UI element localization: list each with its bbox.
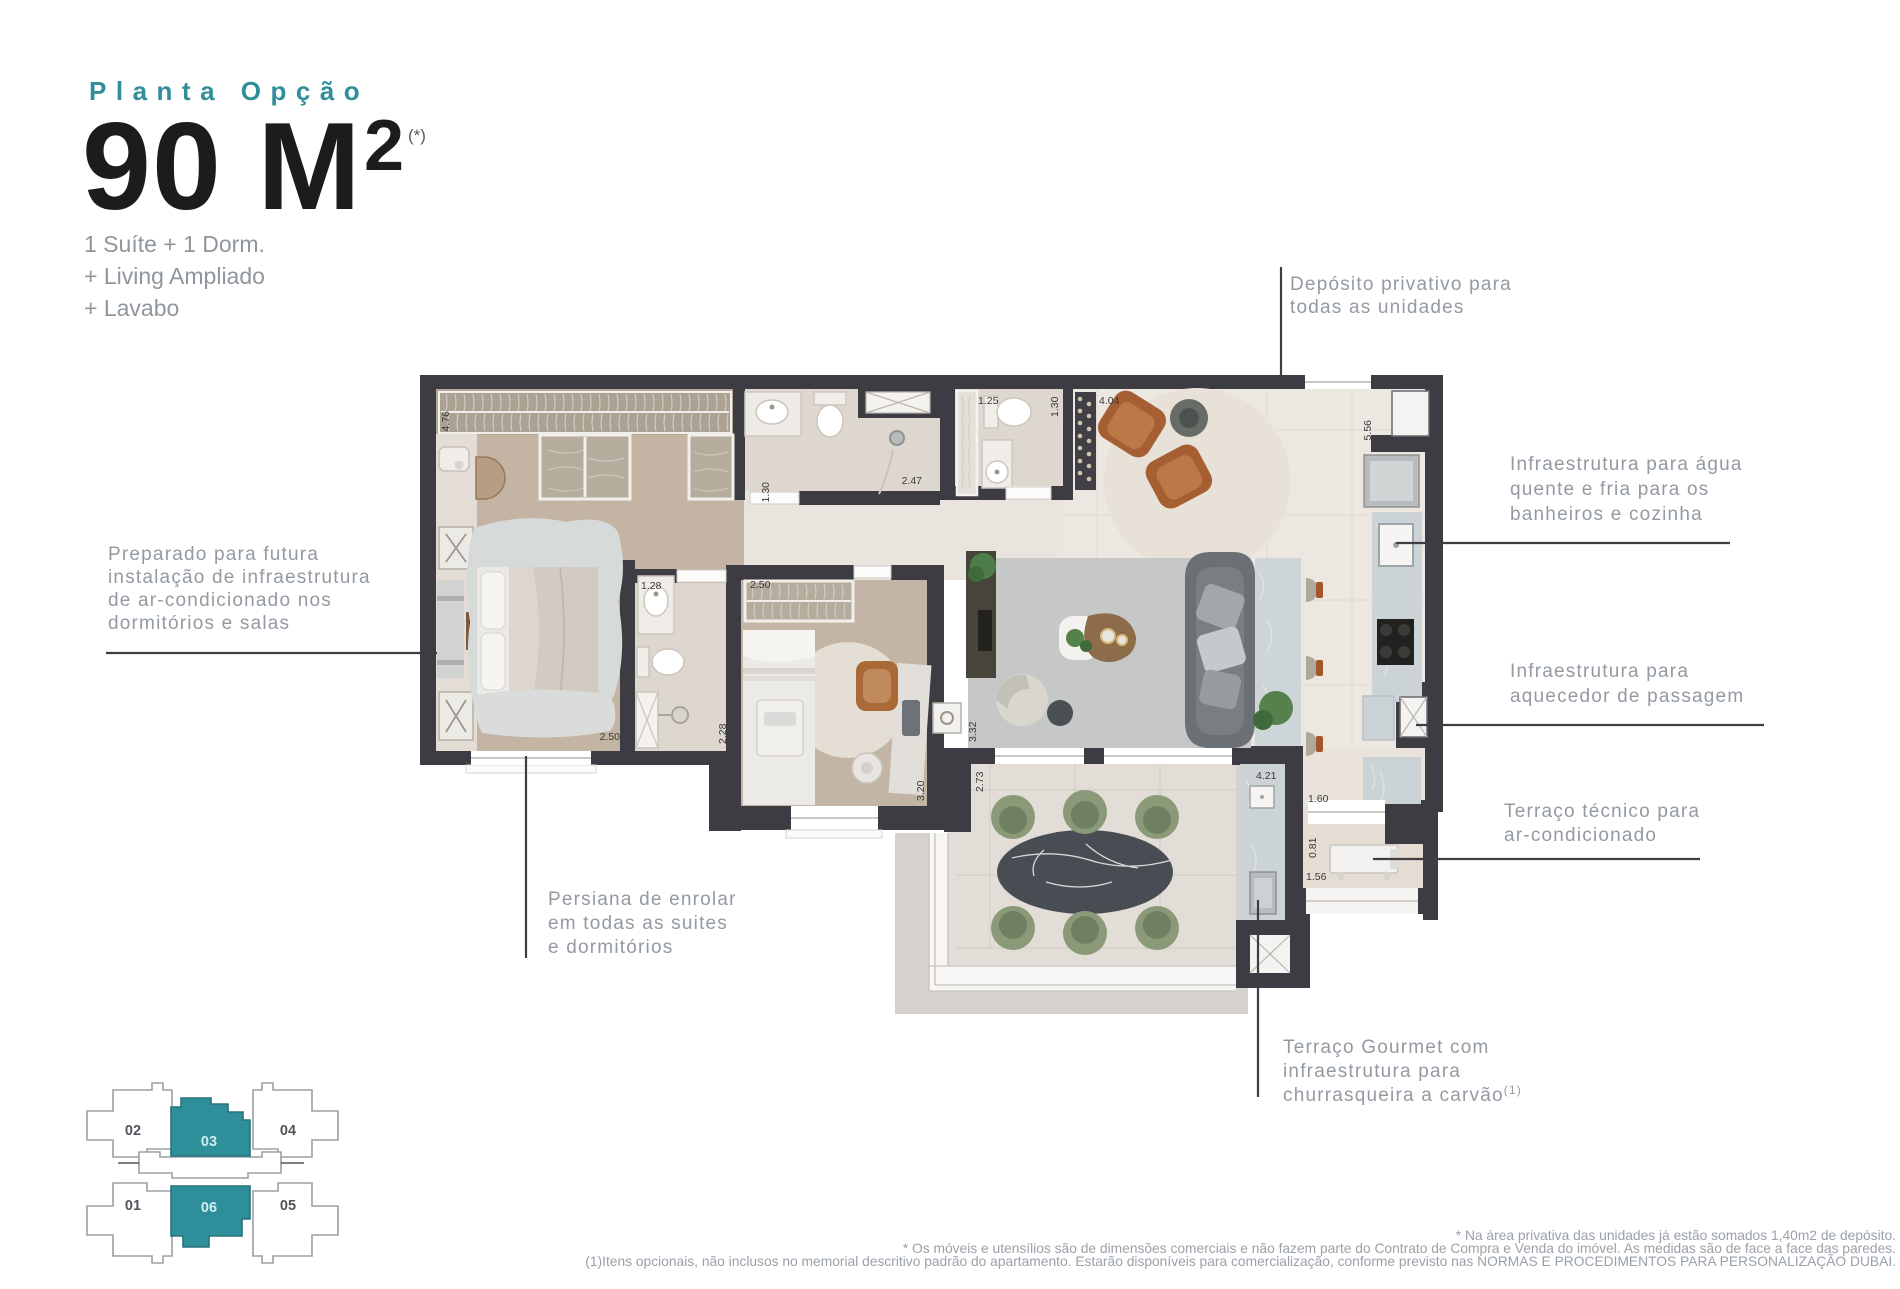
svg-text:+ Living Ampliado: + Living Ampliado — [84, 263, 265, 289]
svg-text:Preparado para futura: Preparado para futura — [108, 544, 319, 565]
svg-text:(*): (*) — [408, 126, 426, 145]
svg-text:02: 02 — [125, 1123, 141, 1139]
svg-text:Infraestrutura para: Infraestrutura para — [1510, 661, 1689, 682]
svg-text:2: 2 — [364, 106, 404, 186]
svg-text:dormitórios e salas: dormitórios e salas — [108, 613, 290, 634]
svg-text:ar-condicionado: ar-condicionado — [1504, 825, 1657, 846]
svg-text:4.76: 4.76 — [440, 411, 452, 432]
svg-text:3.32: 3.32 — [967, 721, 979, 742]
svg-text:5.56: 5.56 — [1362, 420, 1374, 441]
svg-text:quente e fria para os: quente e fria para os — [1510, 479, 1709, 500]
svg-text:de ar-condicionado nos: de ar-condicionado nos — [108, 590, 332, 611]
svg-text:04: 04 — [280, 1123, 296, 1139]
svg-text:90 M: 90 M — [82, 98, 362, 236]
svg-text:2.47: 2.47 — [902, 475, 923, 487]
svg-text:4.21: 4.21 — [1256, 770, 1277, 782]
svg-text:Depósito privativo para: Depósito privativo para — [1290, 274, 1512, 295]
svg-text:em todas as suites: em todas as suites — [548, 913, 728, 934]
svg-text:2.50: 2.50 — [750, 579, 771, 591]
svg-text:2.28: 2.28 — [717, 723, 729, 744]
svg-text:01: 01 — [125, 1198, 141, 1214]
svg-text:Infraestrutura para água: Infraestrutura para água — [1510, 454, 1743, 475]
svg-text:aquecedor de passagem: aquecedor de passagem — [1510, 686, 1744, 707]
svg-text:1.30: 1.30 — [760, 482, 772, 503]
svg-text:todas as unidades: todas as unidades — [1290, 297, 1465, 318]
svg-text:2.50: 2.50 — [600, 731, 621, 743]
svg-text:0.81: 0.81 — [1307, 837, 1319, 858]
svg-text:03: 03 — [201, 1134, 217, 1150]
svg-text:e dormitórios: e dormitórios — [548, 937, 673, 958]
svg-text:05: 05 — [280, 1198, 296, 1214]
svg-text:+ Lavabo: + Lavabo — [84, 295, 179, 321]
svg-text:instalação de infraestrutura: instalação de infraestrutura — [108, 567, 371, 588]
svg-text:1.56: 1.56 — [1306, 871, 1327, 883]
svg-text:1 Suíte + 1 Dorm.: 1 Suíte + 1 Dorm. — [84, 231, 265, 257]
svg-text:Terraço Gourmet com: Terraço Gourmet com — [1283, 1037, 1490, 1058]
svg-text:churrasqueira a carvão(1): churrasqueira a carvão(1) — [1283, 1083, 1522, 1106]
svg-text:1.30: 1.30 — [1049, 396, 1061, 417]
svg-text:1.60: 1.60 — [1308, 793, 1329, 805]
svg-text:2.73: 2.73 — [974, 771, 986, 792]
svg-text:Terraço técnico para: Terraço técnico para — [1504, 801, 1700, 822]
svg-text:1.28: 1.28 — [641, 580, 662, 592]
svg-text:infraestrutura para: infraestrutura para — [1283, 1061, 1461, 1082]
svg-text:4.04: 4.04 — [1099, 395, 1120, 407]
svg-text:(1)Itens opcionais, não inclus: (1)Itens opcionais, não inclusos no memo… — [585, 1253, 1896, 1269]
svg-text:3.20: 3.20 — [915, 780, 927, 801]
svg-text:1.25: 1.25 — [978, 395, 999, 407]
svg-text:Persiana de enrolar: Persiana de enrolar — [548, 889, 737, 910]
svg-text:banheiros e cozinha: banheiros e cozinha — [1510, 504, 1703, 525]
svg-text:06: 06 — [201, 1200, 217, 1216]
